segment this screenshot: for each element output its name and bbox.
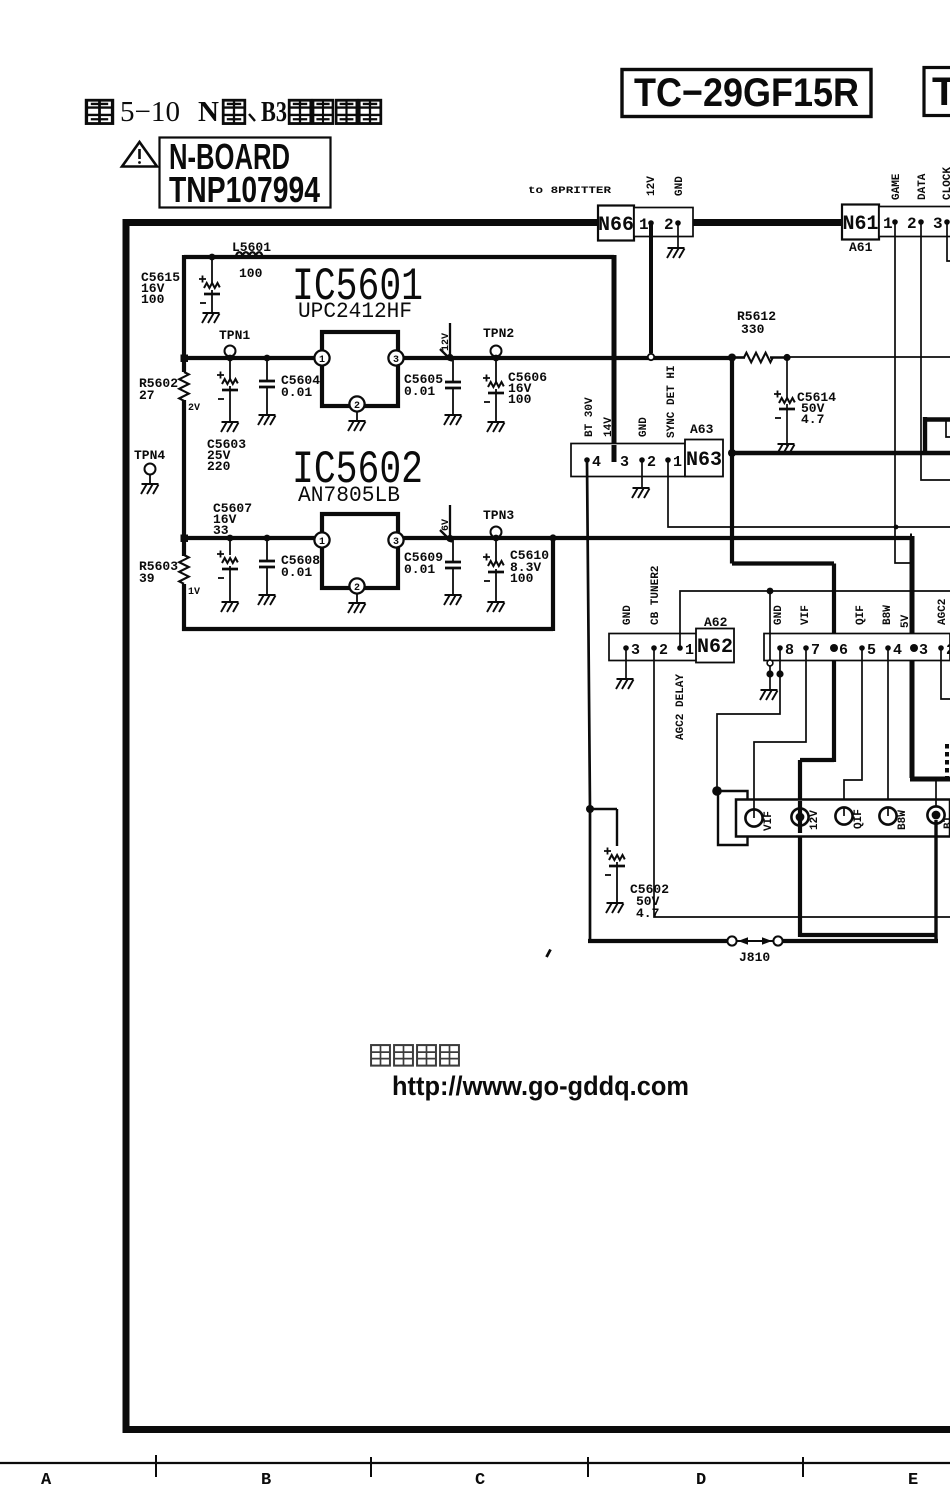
svg-text:14V: 14V	[603, 417, 615, 437]
svg-text:B: B	[261, 1471, 271, 1489]
svg-text:N66: N66	[598, 214, 634, 237]
svg-text:330: 330	[741, 322, 765, 337]
svg-text:2: 2	[946, 642, 950, 659]
svg-text:100: 100	[508, 392, 532, 407]
svg-text:A62: A62	[704, 615, 728, 630]
svg-text:100: 100	[141, 292, 165, 307]
svg-text:T: T	[932, 70, 950, 114]
svg-text:GND: GND	[674, 176, 686, 196]
svg-text:5: 5	[867, 642, 876, 659]
svg-text:1: 1	[639, 216, 649, 234]
svg-text:1: 1	[673, 454, 682, 471]
svg-text:3: 3	[919, 642, 928, 659]
svg-text:A63: A63	[690, 422, 714, 437]
svg-text:SYNC DET HI: SYNC DET HI	[666, 365, 678, 438]
svg-text:3: 3	[393, 537, 399, 548]
svg-text:2: 2	[354, 583, 360, 594]
svg-text:27: 27	[139, 388, 155, 403]
svg-text:UPC2412HF: UPC2412HF	[298, 299, 412, 324]
svg-text:12V: 12V	[809, 810, 821, 830]
svg-text:D: D	[696, 1471, 706, 1489]
svg-text:B8W: B8W	[882, 605, 894, 625]
svg-text:L5601: L5601	[232, 240, 271, 255]
svg-text:J810: J810	[739, 950, 770, 965]
svg-text:QIF: QIF	[853, 809, 865, 829]
svg-text:E: E	[908, 1471, 918, 1489]
svg-text:1: 1	[685, 642, 694, 659]
svg-text:100: 100	[239, 266, 263, 281]
svg-text:8: 8	[785, 642, 794, 659]
svg-text:100: 100	[510, 571, 534, 586]
svg-text:7: 7	[811, 642, 820, 659]
svg-text:2: 2	[659, 642, 668, 659]
svg-text:A61: A61	[849, 240, 873, 255]
svg-text:1: 1	[319, 355, 325, 366]
svg-text:4.7: 4.7	[801, 412, 824, 427]
svg-text:39: 39	[139, 571, 155, 586]
svg-text:B3: B3	[261, 96, 287, 128]
svg-text:CB TUNER2: CB TUNER2	[650, 566, 662, 625]
svg-text:0.01: 0.01	[281, 565, 312, 580]
svg-text:2: 2	[907, 215, 917, 233]
svg-text:N62: N62	[697, 636, 733, 659]
svg-text:0.01: 0.01	[404, 384, 435, 399]
svg-text:BT: BT	[943, 815, 950, 829]
svg-text:12V: 12V	[646, 176, 658, 196]
svg-text:N61: N61	[842, 213, 878, 236]
svg-text:3: 3	[393, 355, 399, 366]
svg-text:GND: GND	[638, 417, 650, 437]
svg-text:2V: 2V	[188, 403, 200, 414]
svg-text:QIF: QIF	[855, 605, 867, 625]
svg-text:0.01: 0.01	[281, 385, 312, 400]
svg-text:TC−29GF15R: TC−29GF15R	[634, 71, 859, 115]
svg-text:to 8PRITTER: to 8PRITTER	[528, 186, 611, 197]
svg-text:A: A	[41, 1471, 52, 1489]
svg-text:5V: 5V	[900, 614, 912, 628]
svg-text:4: 4	[592, 454, 601, 471]
svg-text:DATA: DATA	[917, 173, 929, 200]
svg-text:N63: N63	[686, 449, 722, 472]
svg-text:2: 2	[664, 216, 674, 234]
svg-text:TNP107994: TNP107994	[169, 169, 320, 210]
svg-text:N: N	[198, 96, 219, 128]
svg-text:1: 1	[883, 215, 893, 233]
svg-text:0.01: 0.01	[404, 562, 435, 577]
svg-text:12V: 12V	[441, 333, 452, 351]
svg-text:GAME: GAME	[891, 173, 903, 200]
svg-text:AN7805LB: AN7805LB	[298, 483, 400, 508]
svg-text:TPN2: TPN2	[483, 326, 514, 341]
svg-text:http://www.go-gddq.com: http://www.go-gddq.com	[392, 1071, 689, 1101]
svg-text:TPN3: TPN3	[483, 508, 514, 523]
svg-text:GND: GND	[622, 605, 634, 625]
svg-text:220: 220	[207, 459, 231, 474]
svg-text:AGC2: AGC2	[937, 599, 949, 625]
svg-text:VIF: VIF	[800, 605, 812, 625]
svg-text:4.7: 4.7	[636, 906, 659, 921]
svg-text:BT 30V: BT 30V	[584, 397, 596, 437]
svg-text:B8W: B8W	[897, 810, 909, 830]
svg-text:3: 3	[620, 454, 629, 471]
svg-text:1V: 1V	[188, 587, 200, 598]
svg-text:TPN4: TPN4	[134, 448, 165, 463]
svg-text:VIF: VIF	[763, 811, 775, 831]
svg-text:4: 4	[893, 642, 902, 659]
svg-text:5−10: 5−10	[120, 96, 180, 128]
svg-text:GND: GND	[773, 605, 785, 625]
svg-text:AGC2 DELAY: AGC2 DELAY	[675, 674, 687, 740]
svg-text:2: 2	[354, 401, 360, 412]
svg-text:6V: 6V	[441, 519, 452, 531]
svg-text:2: 2	[647, 454, 656, 471]
svg-text:TPN1: TPN1	[219, 328, 250, 343]
svg-text:33: 33	[213, 523, 229, 538]
svg-text:C: C	[475, 1471, 485, 1489]
svg-text:CLOCK: CLOCK	[942, 167, 950, 200]
svg-text:3: 3	[933, 215, 943, 233]
svg-text:3: 3	[631, 642, 640, 659]
svg-text:1: 1	[319, 537, 325, 548]
svg-text:6: 6	[839, 642, 848, 659]
